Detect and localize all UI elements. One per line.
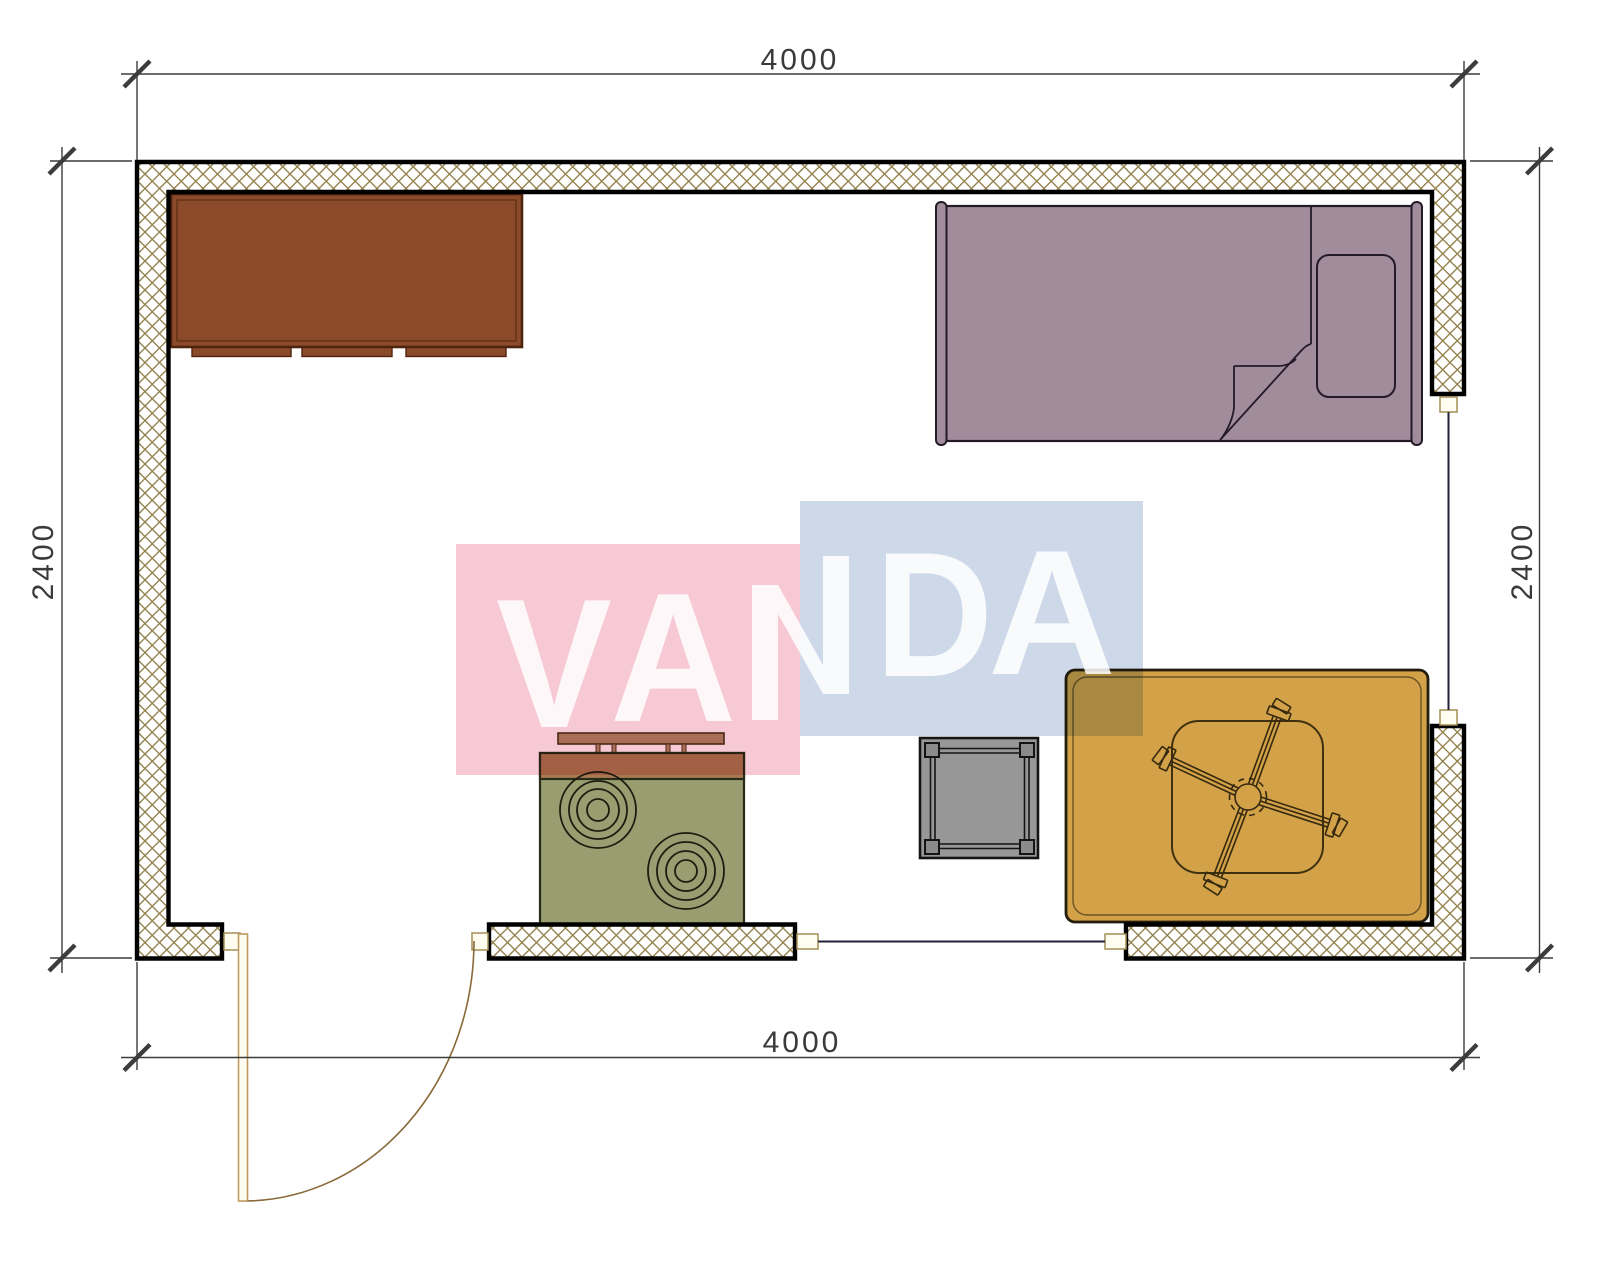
svg-text:4000: 4000 [763, 1026, 842, 1059]
svg-text:V: V [496, 560, 612, 766]
svg-text:A: A [610, 556, 736, 761]
svg-text:2400: 2400 [1506, 522, 1539, 601]
svg-text:2400: 2400 [27, 522, 60, 601]
svg-text:4000: 4000 [761, 44, 840, 77]
svg-text:D: D [875, 516, 993, 715]
svg-text:A: A [988, 513, 1116, 712]
